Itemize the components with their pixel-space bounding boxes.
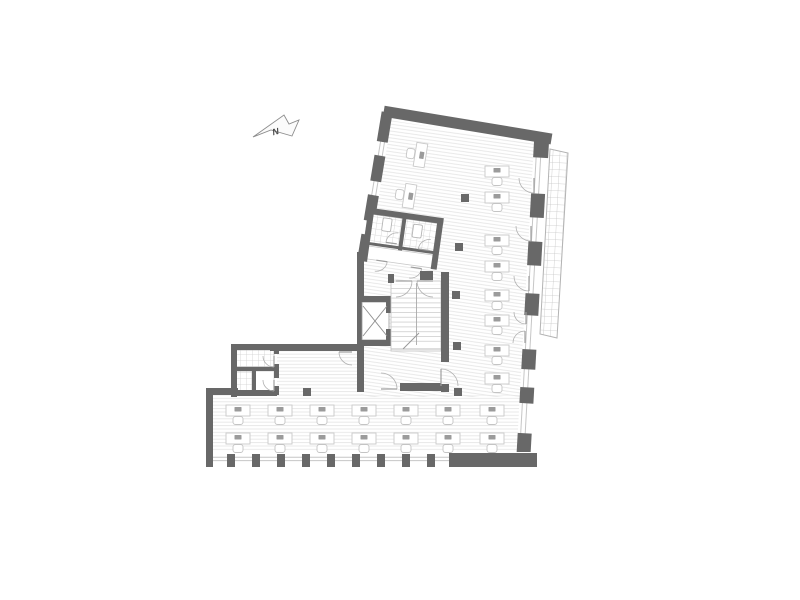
bottom-wall-pillar xyxy=(227,454,235,467)
column xyxy=(455,243,463,251)
right-wall-segment xyxy=(519,387,534,404)
desk-monitor xyxy=(445,407,452,412)
desk-chair xyxy=(406,148,415,159)
desk-chair xyxy=(233,417,243,425)
desk-chair xyxy=(275,417,285,425)
wc-room-a-floor xyxy=(236,350,274,367)
bottom-wall-pillar xyxy=(427,454,435,467)
desk-chair xyxy=(401,445,411,453)
desk-monitor xyxy=(277,435,284,440)
desk-monitor xyxy=(494,317,501,322)
desk-chair xyxy=(275,445,285,453)
bottom-wall-pillar xyxy=(352,454,360,467)
floor-plan-canvas: N xyxy=(0,0,800,600)
desk-monitor xyxy=(494,237,501,242)
desk-chair xyxy=(443,445,453,453)
wc-lobby-floor xyxy=(254,371,274,391)
desk-monitor xyxy=(235,407,242,412)
desk-monitor xyxy=(494,168,501,173)
desk-chair xyxy=(487,417,497,425)
column xyxy=(454,388,462,396)
stair-wall-stub xyxy=(420,271,433,280)
column xyxy=(452,291,460,299)
desk-chair xyxy=(492,204,502,212)
wc-fixture xyxy=(382,218,393,232)
core-room-wall xyxy=(441,384,449,392)
desk-monitor xyxy=(403,407,410,412)
desk-monitor xyxy=(277,407,284,412)
desk-chair xyxy=(317,417,327,425)
bottom-wall-pillar xyxy=(252,454,260,467)
column xyxy=(453,342,461,350)
desk-monitor xyxy=(494,347,501,352)
desk-monitor xyxy=(361,407,368,412)
bottom-wall-pillar xyxy=(402,454,410,467)
bottom-wall-pillar xyxy=(377,454,385,467)
desk-chair xyxy=(359,445,369,453)
wc-room-b-floor xyxy=(236,371,252,391)
desk-monitor xyxy=(489,435,496,440)
column xyxy=(461,194,469,202)
wc-wall xyxy=(236,367,274,371)
desk-monitor xyxy=(445,435,452,440)
right-wall-segment xyxy=(527,241,542,266)
desk-chair xyxy=(359,417,369,425)
desk-monitor xyxy=(319,407,326,412)
desk-monitor xyxy=(403,435,410,440)
desk-chair xyxy=(401,417,411,425)
wc-wall xyxy=(274,364,279,378)
right-wall-segment xyxy=(530,193,545,218)
desk-chair xyxy=(492,385,502,393)
wc-wall xyxy=(252,371,256,393)
desk-monitor xyxy=(235,435,242,440)
desk-monitor xyxy=(361,435,368,440)
right-wall-segment xyxy=(521,349,536,370)
desk-chair xyxy=(395,189,404,200)
desk-chair xyxy=(443,417,453,425)
stair-wall-stub xyxy=(388,274,394,283)
desk-chair xyxy=(492,327,502,335)
desk-monitor xyxy=(494,375,501,380)
stair-treads xyxy=(391,284,441,344)
plan-root: N xyxy=(206,105,568,468)
desk-chair xyxy=(492,357,502,365)
column xyxy=(303,388,311,396)
bottom-wall-pillar xyxy=(327,454,335,467)
bottom-wall-pillar xyxy=(277,454,285,467)
desk-chair xyxy=(492,247,502,255)
desk-chair xyxy=(492,273,502,281)
desk-monitor xyxy=(494,263,501,268)
desk-chair xyxy=(233,445,243,453)
wc-fixture xyxy=(412,224,423,238)
lower-wing-floor xyxy=(213,395,534,454)
core-room-wall xyxy=(400,383,441,391)
desk-chair xyxy=(492,302,502,310)
desk-chair xyxy=(317,445,327,453)
desk-chair xyxy=(487,445,497,453)
nook-wall xyxy=(270,344,362,351)
desk-monitor xyxy=(319,435,326,440)
desk-chair xyxy=(492,178,502,186)
stair-wall-right xyxy=(441,272,449,362)
bottom-wall-pillar xyxy=(302,454,310,467)
bottom-wall-solid xyxy=(449,453,537,467)
nook-floor xyxy=(277,351,361,397)
desk-monitor xyxy=(489,407,496,412)
lower-left-wall xyxy=(206,388,213,467)
desk-monitor xyxy=(494,194,501,199)
desk-monitor xyxy=(494,292,501,297)
wc-wall xyxy=(231,390,277,396)
floor-plan: N xyxy=(0,0,800,600)
